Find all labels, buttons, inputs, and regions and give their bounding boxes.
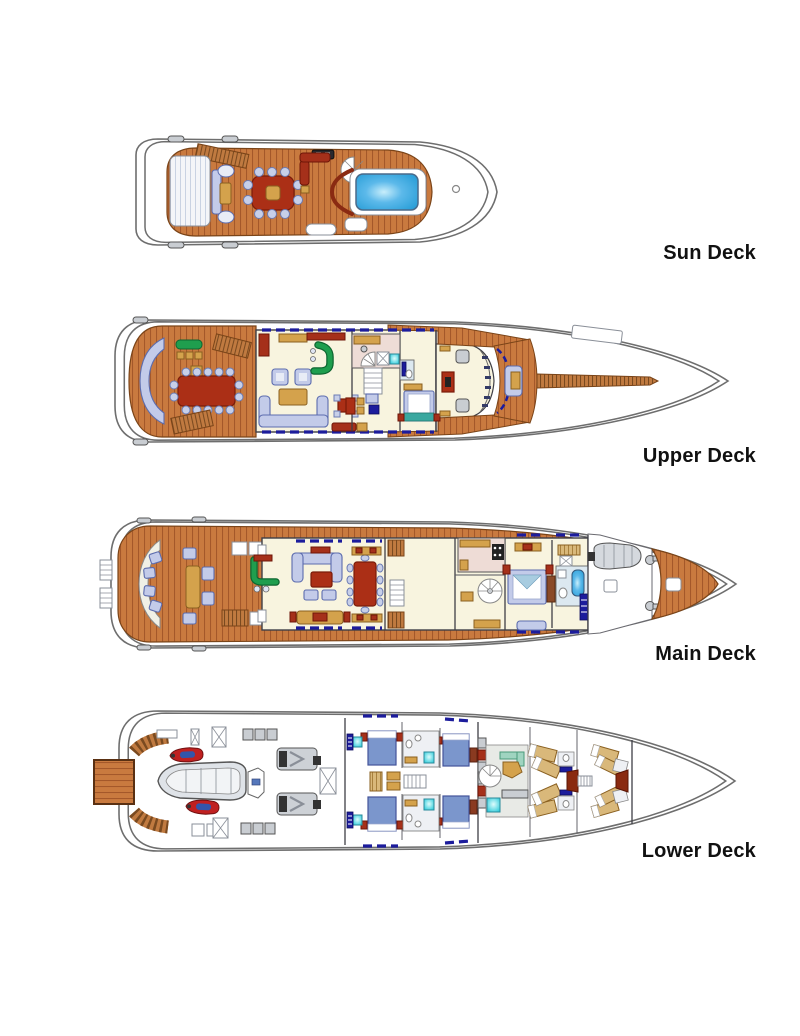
fwd-seat bbox=[345, 218, 367, 231]
lower-deck-plan bbox=[94, 711, 735, 851]
foredeck-fitting bbox=[453, 186, 460, 193]
galley bbox=[458, 538, 505, 572]
foyer-stairs bbox=[388, 540, 404, 628]
upper-deck-plan bbox=[115, 317, 728, 445]
deck-label-sun-deck: Sun Deck bbox=[663, 242, 756, 265]
deck-label-main-deck: Main Deck bbox=[655, 643, 756, 666]
guest-lobby-stairs bbox=[370, 772, 426, 791]
deck-label-lower-deck: Lower Deck bbox=[642, 840, 756, 863]
engine bbox=[277, 748, 321, 770]
aft-bench bbox=[306, 224, 336, 235]
observation-seat bbox=[505, 366, 522, 396]
sun-loungers bbox=[170, 156, 234, 226]
tender-on-deck bbox=[588, 543, 641, 569]
engine bbox=[277, 793, 321, 815]
bow-table bbox=[666, 578, 681, 591]
sun-deck-plan bbox=[136, 136, 497, 248]
bow-seating-teak bbox=[652, 549, 718, 619]
yacht-deck-plans-page: Sun Deck Upper Deck Main Deck Lower Deck bbox=[0, 0, 800, 1036]
deck-label-upper-deck: Upper Deck bbox=[643, 445, 756, 468]
foredeck-hatch bbox=[604, 580, 617, 592]
yacht-deck-plans-canvas bbox=[0, 0, 800, 1036]
main-deck-plan bbox=[100, 517, 736, 651]
